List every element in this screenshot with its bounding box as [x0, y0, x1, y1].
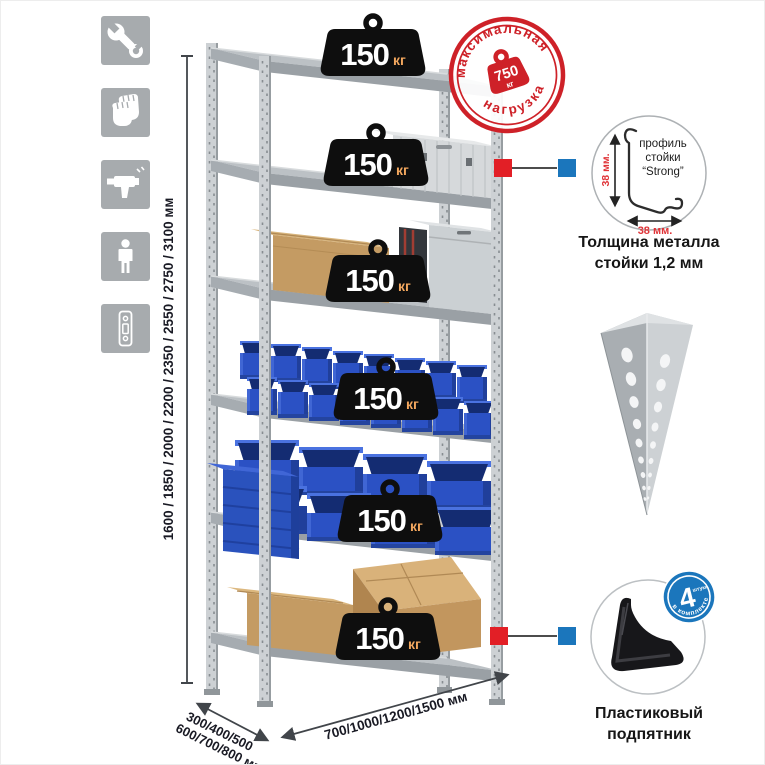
shelf-load-badge: 150кг: [330, 597, 446, 663]
load-value: 150: [355, 621, 404, 657]
height-options-label: 1600 / 1850 / 2000 / 2200 / 2350 / 2550 …: [161, 198, 176, 541]
profile-label-1: профиль: [639, 138, 687, 150]
shelf-load-badge: 150кг: [332, 479, 448, 545]
profile-callout-connector: [494, 159, 576, 177]
gloves-icon: [101, 88, 150, 137]
max-load-stamp: максимальная нагрузка 750 кг: [443, 11, 571, 139]
profile-caption: Толщина металла стойки 1,2 мм: [569, 232, 729, 274]
quantity-badge: 4 штуки в комплекте: [661, 569, 717, 630]
blue-marker-square: [558, 627, 576, 645]
foot-caption-line1: Пластиковый: [569, 703, 729, 724]
shelf-load-badge: 150кг: [318, 123, 434, 189]
profile-caption-line2: стойки 1,2 мм: [569, 253, 729, 274]
load-value: 150: [345, 263, 394, 299]
metal-angle-image: [589, 297, 709, 538]
load-unit: кг: [410, 518, 423, 534]
width-options-label: 700/1000/1200/1500 мм: [323, 689, 469, 743]
profile-caption-line1: Толщина металла: [569, 232, 729, 253]
load-value: 150: [353, 381, 402, 417]
upright-profile-icon: [101, 304, 150, 353]
infographic-canvas: 1600 / 1850 / 2000 / 2200 / 2350 / 2550 …: [0, 0, 765, 765]
shelf-load-badge: 150кг: [320, 239, 436, 305]
profile-label-3: “Strong”: [642, 166, 684, 178]
shelf-load-badge: 150кг: [328, 357, 444, 423]
wrench-icon: [101, 16, 150, 65]
shelf-load-badge: 150кг: [315, 13, 431, 79]
load-unit: кг: [408, 636, 421, 652]
load-unit: кг: [393, 52, 406, 68]
profile-detail-circle: 38 мм. 38 мм. профиль стойки “Strong”: [585, 111, 713, 244]
red-marker-square: [490, 627, 508, 645]
profile-height-dim: 38 мм.: [600, 153, 612, 186]
load-value: 150: [340, 37, 389, 73]
foot-caption-line2: подпятник: [569, 724, 729, 745]
person-icon: [101, 232, 150, 281]
width-dimension: 700/1000/1200/1500 мм: [283, 675, 507, 743]
blue-marker-square: [558, 159, 576, 177]
load-value: 150: [357, 503, 406, 539]
load-unit: кг: [398, 278, 411, 294]
foot-caption: Пластиковый подпятник: [569, 703, 729, 745]
height-dimension: 1600 / 1850 / 2000 / 2200 / 2350 / 2550 …: [161, 56, 193, 683]
load-value: 150: [343, 147, 392, 183]
foot-callout-connector: [490, 627, 576, 645]
load-unit: кг: [406, 396, 419, 412]
load-unit: кг: [396, 162, 409, 178]
red-marker-square: [494, 159, 512, 177]
blue-crate-image: [207, 463, 299, 559]
feature-icons-column: [101, 16, 150, 376]
drill-icon: [101, 160, 150, 209]
depth-dimension: 300/400/500 600/700/800 мм: [173, 704, 272, 765]
profile-label-2: стойки: [645, 152, 680, 164]
